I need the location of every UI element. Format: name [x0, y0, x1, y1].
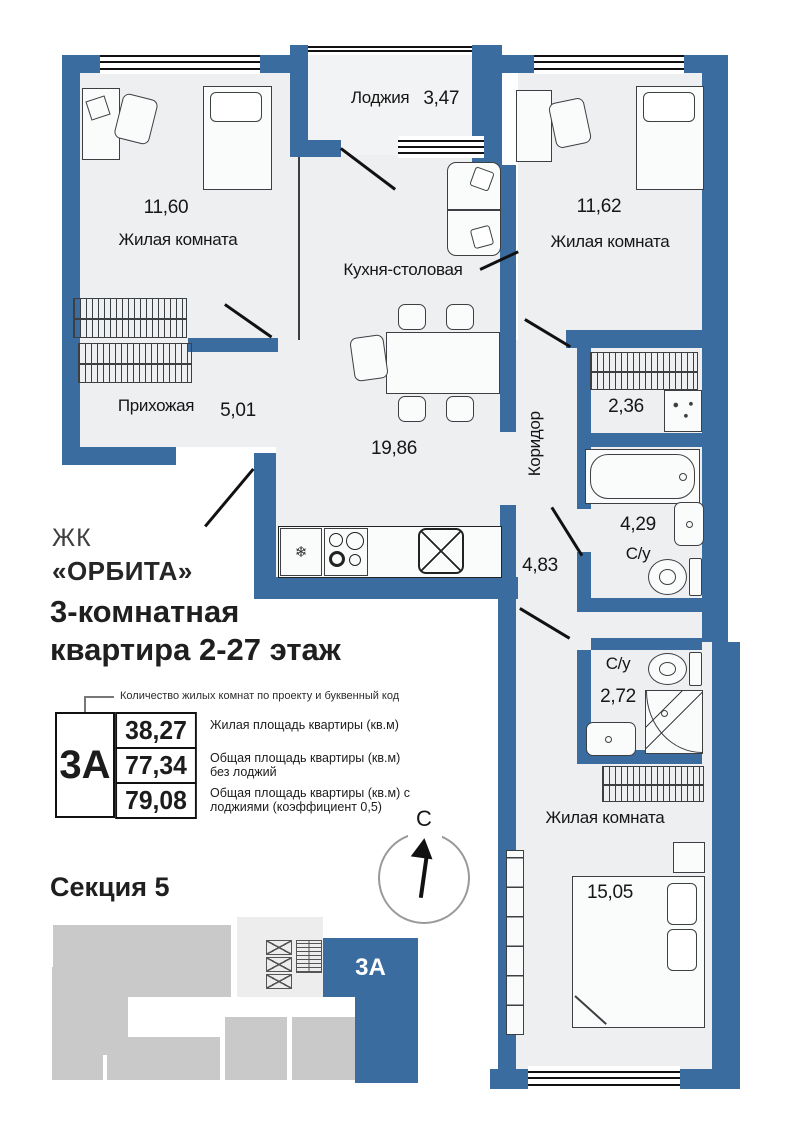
wall-storage-left: [577, 348, 591, 433]
area-desc-living: Жилая площадь квартиры (кв.м): [210, 718, 420, 732]
window-living3: [528, 1066, 680, 1090]
room-area-bath2: 2,72: [590, 686, 646, 708]
section-block: [107, 1037, 220, 1080]
wall-kitchen-bottom: [254, 577, 518, 599]
washing-machine-icon: [664, 390, 702, 432]
wall-kitchen-corridor-upper: [500, 165, 516, 432]
section-unit-highlight: 3А: [323, 938, 418, 997]
toilet: [648, 652, 702, 686]
window-loggia: [308, 44, 472, 54]
wall-bath2-top: [591, 638, 702, 650]
room-area-living2: 11,62: [567, 196, 631, 218]
area-value-total-loggia: 79,08: [115, 782, 197, 819]
fridge-icon: ❄: [280, 528, 322, 576]
room-area-living3: 15,05: [578, 882, 642, 904]
room-area-corridor: 4,83: [510, 555, 570, 577]
area-desc-total-loggia: Общая площадь квартиры (кв.м) с лоджиями…: [210, 786, 410, 814]
bathtub: [585, 449, 700, 504]
wall-living2-bottom: [566, 330, 702, 348]
dining-table: [386, 332, 500, 394]
wardrobe: [602, 766, 704, 802]
shelf: [506, 850, 524, 1035]
wall-left-outer: [62, 55, 80, 465]
compass-arrow-icon: [411, 837, 436, 860]
wall-right-outer-lower: [712, 642, 740, 1089]
apartment-title-line1: 3-комнатная: [50, 594, 239, 630]
sink: [586, 722, 636, 756]
sink-icon: [418, 528, 464, 574]
chair: [446, 396, 474, 422]
callout-line: [84, 696, 86, 712]
stairs-icon: [296, 940, 322, 973]
area-value-living: 38,27: [115, 712, 197, 749]
desk: [516, 90, 552, 162]
wall-storage-bottom: [577, 433, 702, 447]
room-label-bath1: С/у: [612, 544, 664, 564]
room-area-hall: 5,01: [214, 400, 262, 422]
wall-loggia-bottom-stub: [300, 140, 341, 157]
callout-text: Количество жилых комнат по проекту и бук…: [120, 690, 540, 702]
room-label-living2: Жилая комната: [530, 232, 690, 252]
elevator-icon: [266, 940, 292, 955]
nightstand: [673, 842, 705, 873]
partition-line: [298, 157, 300, 340]
window-living1: [100, 50, 260, 74]
unit-code-cell: 3А: [55, 712, 115, 818]
room-area-kitchen: 19,86: [362, 438, 426, 460]
shower: [645, 690, 703, 754]
complex-prefix: ЖК: [52, 524, 92, 553]
stove-icon: [324, 528, 368, 576]
window-kitchen-loggia: [398, 136, 484, 158]
room-label-bath2: С/у: [592, 654, 644, 674]
section-title: Секция 5: [50, 872, 170, 903]
wardrobe: [590, 352, 698, 390]
wardrobe: [73, 298, 187, 338]
toilet: [648, 558, 702, 596]
area-value-total: 77,34: [115, 747, 197, 784]
sink: [674, 502, 704, 546]
wall-entrance: [254, 453, 276, 579]
room-label-loggia: Лоджия3,47: [330, 88, 480, 110]
armchair: [349, 334, 389, 382]
room-label-corridor: Коридор: [525, 404, 545, 484]
complex-name: «ОРБИТА»: [52, 556, 193, 587]
room-area-bath1: 4,29: [610, 514, 666, 536]
floorplan-page: ❄ Лоджия3,47 11,60 Жилая комната 11,62: [0, 0, 800, 1131]
wardrobe: [78, 343, 192, 383]
apartment-title-line2: квартира 2-27 этаж: [50, 632, 341, 668]
chair: [398, 396, 426, 422]
section-block: [225, 1017, 287, 1080]
elevator-icon: [266, 974, 292, 989]
elevator-icon: [266, 957, 292, 972]
room-area-storage: 2,36: [598, 396, 654, 418]
wall-bath1-bottom: [577, 598, 702, 612]
section-unit-highlight: [355, 997, 418, 1083]
door-entrance: [204, 468, 254, 527]
sofa: [447, 162, 501, 256]
callout-line: [84, 696, 114, 698]
section-block: [52, 1055, 103, 1080]
section-unit-code: 3А: [355, 954, 386, 982]
room-area-living1: 11,60: [134, 197, 198, 219]
room-label-living3: Жилая комната: [530, 808, 680, 828]
bed: [636, 86, 704, 190]
chair: [398, 304, 426, 330]
wall-living1-hall: [188, 338, 278, 352]
wall-hall-bottom: [62, 447, 176, 465]
room-label-kitchen: Кухня-столовая: [318, 260, 488, 280]
chair: [446, 304, 474, 330]
bed: [203, 86, 272, 190]
room-label-living1: Жилая комната: [98, 230, 258, 250]
room-label-hall: Прихожая: [106, 396, 206, 416]
compass-north-label: С: [409, 806, 439, 832]
wall-right-outer-upper: [702, 55, 728, 642]
area-desc-total: Общая площадь квартиры (кв.м) без лоджий: [210, 751, 410, 779]
wall-kitchen-corridor-lower: [500, 505, 516, 599]
window-living2: [534, 50, 684, 74]
